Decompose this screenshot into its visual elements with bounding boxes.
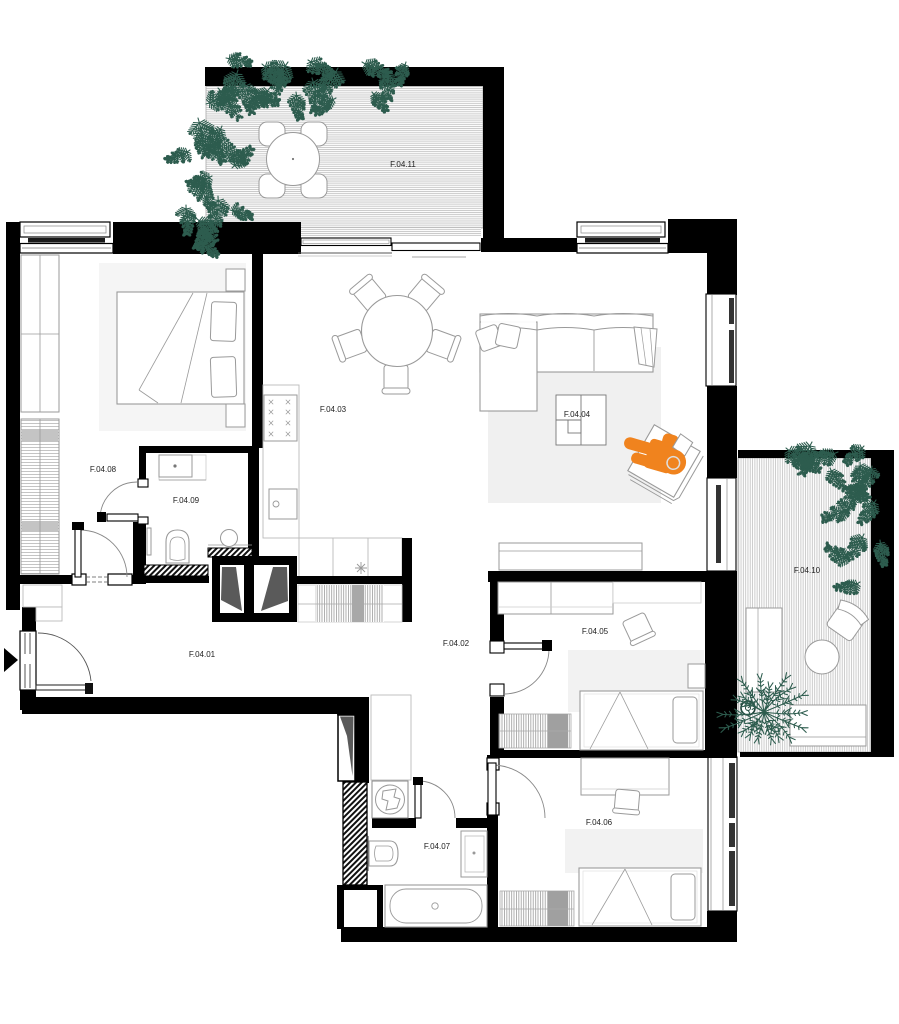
svg-text:F.04.05: F.04.05	[582, 627, 609, 636]
svg-text:F.04.08: F.04.08	[90, 465, 117, 474]
svg-text:F.04.04: F.04.04	[564, 410, 591, 419]
svg-text:F.04.01: F.04.01	[189, 650, 216, 659]
svg-text:F.04.03: F.04.03	[320, 405, 347, 414]
svg-text:F.04.07: F.04.07	[424, 842, 451, 851]
svg-text:F.04.09: F.04.09	[173, 496, 200, 505]
svg-text:F.04.10: F.04.10	[794, 566, 821, 575]
svg-text:F.04.11: F.04.11	[390, 160, 416, 169]
svg-text:F.04.02: F.04.02	[443, 639, 470, 648]
svg-text:F.04.06: F.04.06	[586, 818, 613, 827]
